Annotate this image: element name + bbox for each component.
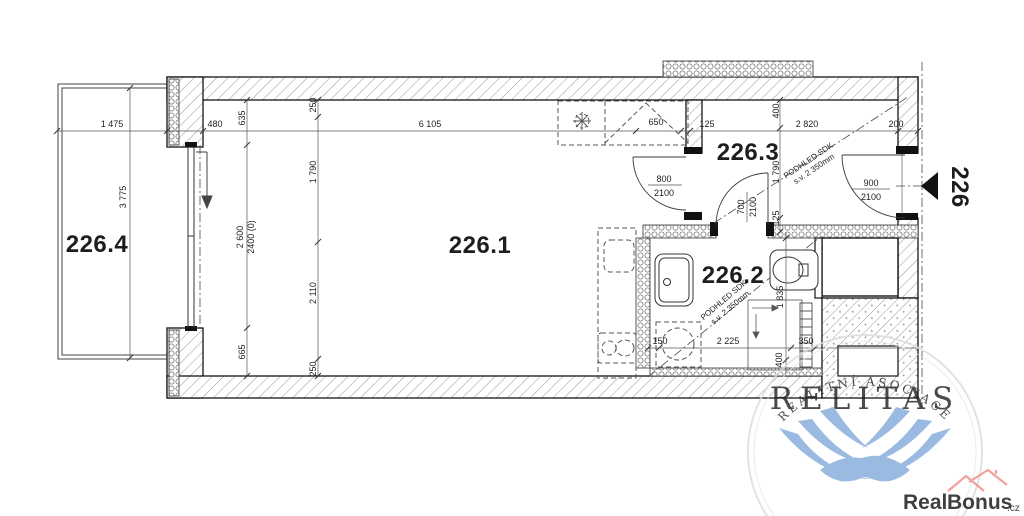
room-label-226-1: 226.1	[449, 232, 512, 259]
dim-2600: 2 600	[235, 226, 245, 249]
ceiling-note-hall: PODHLED SDK s.v. 2 350mm	[782, 140, 841, 188]
dim-bath-400: 400	[774, 352, 784, 367]
door-900-height: 2100	[861, 192, 881, 202]
dim-2400-0: 2400 (0)	[246, 220, 256, 254]
dim-2225: 2 225	[717, 336, 740, 346]
partition-hall-bath-right	[768, 225, 918, 238]
dim-125: 125	[699, 119, 714, 129]
wardrobe-dashed	[558, 101, 688, 145]
dim-hall-400: 400	[771, 103, 781, 118]
realbonus-logo: Real Bonus .cz	[903, 470, 1020, 514]
floor-plan-page: 1 475 480 6 105 650 125 2 820 200 3 775 …	[0, 0, 1024, 516]
dim-665: 665	[237, 344, 247, 359]
room-label-226-3: 226.3	[717, 139, 780, 166]
dim-650: 650	[648, 117, 663, 127]
dim-balcony-width: 1 475	[101, 119, 124, 129]
unit-number-label: 226	[946, 166, 973, 208]
unit-entrance-marker: 226	[921, 166, 973, 208]
kitchen-dashed	[598, 228, 636, 378]
toilet	[770, 250, 818, 290]
door-800-height: 2100	[654, 188, 674, 198]
shaft-bottom-right	[838, 346, 898, 376]
wall-right-upper	[898, 77, 918, 153]
partition-hall-bath-left	[643, 225, 716, 238]
installation-niche	[822, 238, 898, 296]
room-label-226-4: 226.4	[66, 231, 129, 258]
partition-bath-bottom	[650, 368, 822, 376]
eagle-handshake-icon	[779, 407, 951, 481]
shaft-bump-top	[663, 61, 813, 77]
dim-2820: 2 820	[796, 119, 819, 129]
door-700	[716, 173, 768, 225]
dim-1790-room: 1 790	[308, 161, 318, 184]
watermark-brand-text: RELITAS	[770, 381, 960, 417]
dim-350: 350	[798, 336, 813, 346]
dim-250-top: 250	[308, 97, 318, 112]
dim-2110: 2 110	[308, 282, 318, 304]
door-700-height: 2100	[748, 197, 758, 217]
realbonus-bonus-text: Bonus	[947, 491, 1012, 514]
balcony-window	[188, 147, 194, 328]
room-label-226-2: 226.2	[702, 262, 765, 289]
door-800-width: 800	[656, 174, 671, 184]
dim-635: 635	[237, 110, 247, 125]
bathtub	[655, 254, 693, 306]
dim-200: 200	[888, 119, 903, 129]
dim-6105: 6 105	[419, 119, 442, 129]
dim-250-bottom: 250	[308, 361, 318, 376]
dim-480: 480	[207, 119, 222, 129]
floor-plan-drawing: 1 475 480 6 105 650 125 2 820 200 3 775 …	[0, 0, 1024, 516]
dim-hall-125: 125	[771, 210, 781, 225]
door-900-width: 900	[863, 178, 878, 188]
realbonus-real-text: Real	[903, 491, 947, 514]
entrance-triangle-icon	[921, 172, 938, 200]
entrance-arrow-icon	[196, 152, 212, 208]
dim-balcony-depth: 3 775	[118, 186, 128, 209]
wall-bottom	[167, 376, 822, 398]
door-700-width: 700	[736, 199, 746, 214]
realbonus-tld-text: .cz	[1007, 503, 1020, 514]
wall-top	[167, 77, 918, 100]
dim-150: 150	[652, 336, 667, 346]
dim-1835: 1 835	[775, 286, 785, 309]
ceiling-light-icon	[573, 112, 591, 130]
